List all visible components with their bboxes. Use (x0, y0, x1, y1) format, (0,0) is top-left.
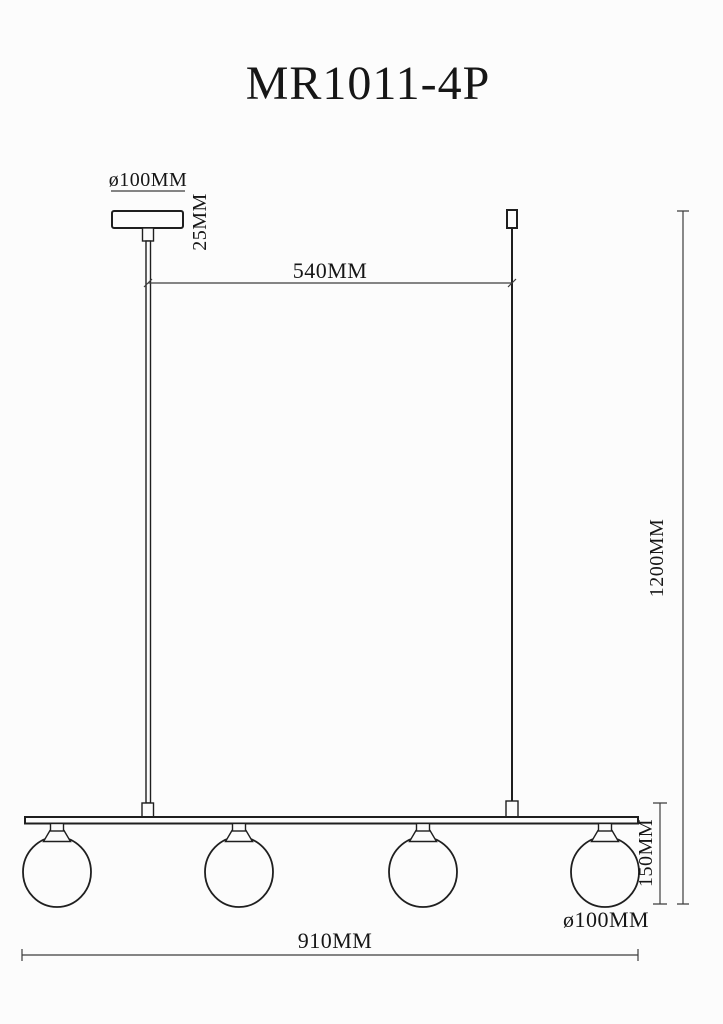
globe-socket-2 (226, 831, 253, 842)
label-suspension-spacing: 540MM (293, 258, 368, 283)
globe-2 (205, 837, 273, 907)
label-canopy-height: 25MM (189, 193, 211, 251)
label-canopy-diameter: ø100MM (109, 169, 188, 191)
label-shade-diameter: ø100MM (563, 907, 649, 932)
technical-drawing-page: MR1011-4P ø100MM 25MM 540MM (0, 0, 723, 1024)
left-wire-grip (142, 803, 154, 818)
label-fixture-length: 910MM (298, 928, 373, 953)
globe-socket-3 (410, 831, 437, 842)
canopy-stem (143, 228, 154, 241)
globe-neck-1 (51, 824, 64, 832)
right-wire-top-grip (507, 210, 517, 228)
globe-neck-3 (417, 824, 430, 832)
label-shade-height: 150MM (635, 819, 657, 887)
fixture-bar (25, 817, 638, 824)
globe-1 (23, 837, 91, 907)
globe-socket-4 (592, 831, 619, 842)
globe-neck-2 (233, 824, 246, 832)
globe-4 (571, 837, 639, 907)
right-wire-grip (506, 801, 518, 818)
ceiling-canopy (112, 211, 183, 228)
globe-socket-1 (44, 831, 71, 842)
label-overall-height: 1200MM (646, 519, 668, 598)
left-suspension-wire (146, 241, 151, 803)
globe-3 (389, 837, 457, 907)
pendant-lamp-dimension-drawing: MR1011-4P ø100MM 25MM 540MM (0, 0, 723, 1024)
globe-neck-4 (599, 824, 612, 832)
drawing-title: MR1011-4P (246, 57, 491, 110)
